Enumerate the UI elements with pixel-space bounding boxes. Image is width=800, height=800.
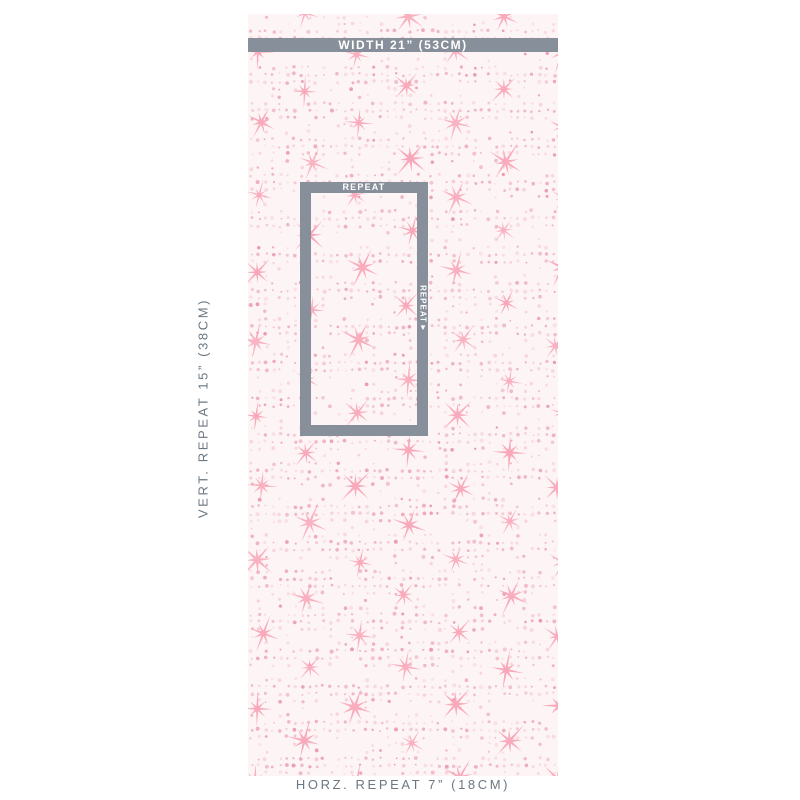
repeat-frame-top-label: REPEAT: [300, 183, 428, 192]
wallpaper-swatch: WIDTH 21” (53CM) REPEAT REPEAT▼: [248, 14, 558, 776]
width-measure-bar: WIDTH 21” (53CM): [248, 38, 558, 52]
product-measurement-diagram: VERT. REPEAT 15” (38CM) WIDTH 21” (53CM)…: [0, 0, 800, 800]
vertical-repeat-label: VERT. REPEAT 15” (38CM): [196, 298, 211, 518]
repeat-frame-side-label: REPEAT▼: [419, 285, 428, 333]
width-measure-label: WIDTH 21” (53CM): [338, 38, 467, 52]
horizontal-repeat-label: HORZ. REPEAT 7” (18CM): [248, 777, 558, 792]
repeat-frame: REPEAT REPEAT▼: [300, 182, 428, 436]
